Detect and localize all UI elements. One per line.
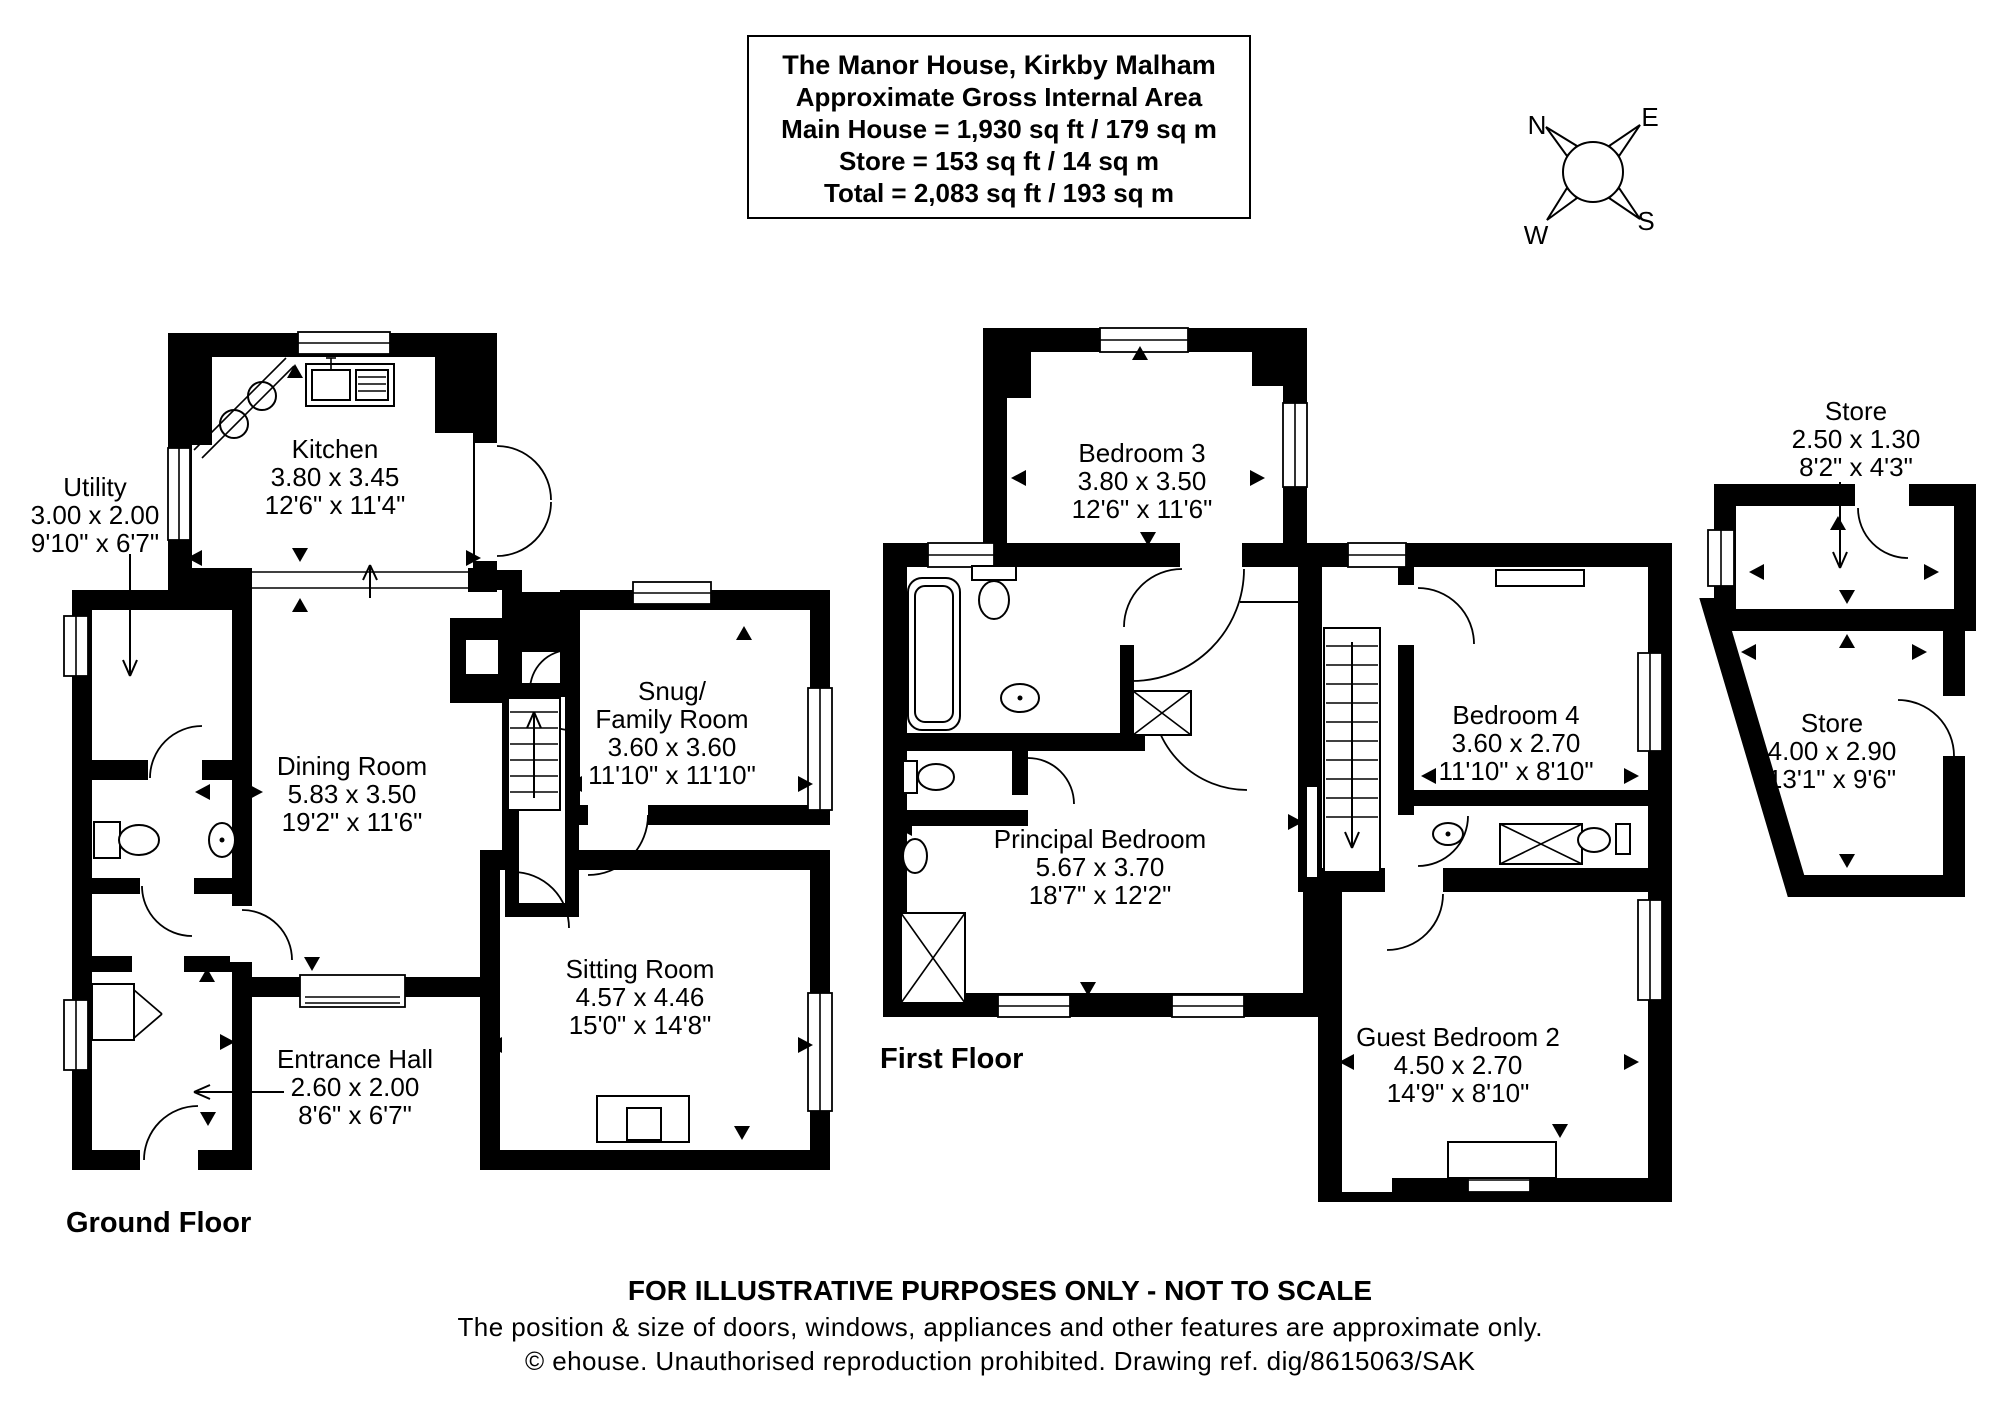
title-line-4: Store = 153 sq ft / 14 sq m — [839, 146, 1159, 176]
principal-imperial: 18'7" x 12'2" — [1029, 880, 1172, 910]
guest-imperial: 14'9" x 8'10" — [1387, 1078, 1530, 1108]
dining-imperial: 19'2" x 11'6" — [282, 807, 423, 837]
title-box: The Manor House, Kirkby Malham Approxima… — [748, 36, 1250, 218]
compass-s: S — [1637, 206, 1654, 236]
bathroom-basin — [1001, 684, 1039, 712]
floor-plan-drawing: The Manor House, Kirkby Malham Approxima… — [0, 0, 2001, 1416]
shower-cubicle — [1133, 691, 1191, 735]
title-line-5: Total = 2,083 sq ft / 193 sq m — [824, 178, 1174, 208]
title-line-3: Main House = 1,930 sq ft / 179 sq m — [781, 114, 1217, 144]
stairs-ground — [508, 698, 560, 810]
compass-n: N — [1528, 110, 1547, 140]
store2-label: Store — [1801, 708, 1863, 738]
snug-metric: 3.60 x 3.60 — [608, 732, 737, 762]
bedroom4-label: Bedroom 4 — [1452, 700, 1579, 730]
ground-floor-plan: Kitchen 3.80 x 3.45 12'6" x 11'4" Utilit… — [31, 332, 832, 1239]
kitchen-metric: 3.80 x 3.45 — [271, 462, 400, 492]
utility-metric: 3.00 x 2.00 — [31, 500, 160, 530]
entrance-metric: 2.60 x 2.00 — [291, 1072, 420, 1102]
sitting-imperial: 15'0" x 14'8" — [569, 1010, 712, 1040]
bedroom4-shelf — [1496, 570, 1584, 586]
bedroom3-metric: 3.80 x 3.50 — [1078, 466, 1207, 496]
bedroom4-imperial: 11'10" x 8'10" — [1438, 756, 1593, 786]
kitchen-label: Kitchen — [292, 434, 379, 464]
store1-metric: 2.50 x 1.30 — [1792, 424, 1921, 454]
entrance-label: Entrance Hall — [277, 1044, 433, 1074]
store2-metric: 4.00 x 2.90 — [1768, 736, 1897, 766]
compass-w: W — [1524, 220, 1549, 250]
bathroom-bath — [908, 578, 960, 730]
footer-disclaimer: FOR ILLUSTRATIVE PURPOSES ONLY - NOT TO … — [458, 1275, 1543, 1376]
snug-imperial: 11'10" x 11'10" — [588, 760, 756, 790]
principal-wardrobe — [901, 913, 965, 1003]
dining-label: Dining Room — [277, 751, 427, 781]
bedroom4-metric: 3.60 x 2.70 — [1452, 728, 1581, 758]
footer-line-1: FOR ILLUSTRATIVE PURPOSES ONLY - NOT TO … — [628, 1275, 1372, 1306]
ground-floor-label: Ground Floor — [66, 1207, 251, 1239]
store2-imperial: 13'1" x 9'6" — [1768, 764, 1896, 794]
store1-imperial: 8'2" x 4'3" — [1799, 452, 1913, 482]
guest-metric: 4.50 x 2.70 — [1394, 1050, 1523, 1080]
title-line-1: The Manor House, Kirkby Malham — [782, 50, 1216, 80]
wc-toilet-first — [903, 761, 954, 793]
principal-basin — [903, 839, 927, 873]
footer-line-2: The position & size of doors, windows, a… — [458, 1312, 1543, 1342]
store-plan: Store 2.50 x 1.30 8'2" x 4'3" Store 4.00… — [1708, 396, 1965, 886]
kitchen-sink — [306, 358, 394, 406]
cloakroom-basin — [209, 823, 235, 857]
snug-label-2: Family Room — [595, 704, 748, 734]
snug-label-1: Snug/ — [638, 676, 707, 706]
first-floor-label: First Floor — [880, 1043, 1023, 1075]
entrance-imperial: 8'6" x 6'7" — [298, 1100, 412, 1130]
footer-line-3: © ehouse. Unauthorised reproduction proh… — [525, 1346, 1476, 1376]
kitchen-imperial: 12'6" x 11'4" — [265, 490, 406, 520]
compass-e: E — [1641, 102, 1658, 132]
sitting-label: Sitting Room — [566, 954, 715, 984]
bedroom3-label: Bedroom 3 — [1078, 438, 1205, 468]
floorplan-page: The Manor House, Kirkby Malham Approxima… — [0, 0, 2001, 1416]
title-line-2: Approximate Gross Internal Area — [796, 82, 1203, 112]
first-floor-plan: Bedroom 3 3.80 x 3.50 12'6" x 11'6" Prin… — [880, 328, 1662, 1192]
store1-label: Store — [1825, 396, 1887, 426]
sitting-metric: 4.57 x 4.46 — [576, 982, 705, 1012]
dining-metric: 5.83 x 3.50 — [288, 779, 417, 809]
guest-bed — [1448, 1142, 1556, 1178]
cloakroom-toilet — [94, 822, 159, 858]
utility-label: Utility — [63, 472, 127, 502]
principal-metric: 5.67 x 3.70 — [1036, 852, 1165, 882]
guest-label: Guest Bedroom 2 — [1356, 1022, 1560, 1052]
utility-imperial: 9'10" x 6'7" — [31, 528, 159, 558]
principal-label: Principal Bedroom — [994, 824, 1206, 854]
bedroom3-imperial: 12'6" x 11'6" — [1072, 494, 1213, 524]
compass-rose-icon: N E S W — [1524, 102, 1659, 250]
sitting-fireplace — [597, 1096, 689, 1142]
